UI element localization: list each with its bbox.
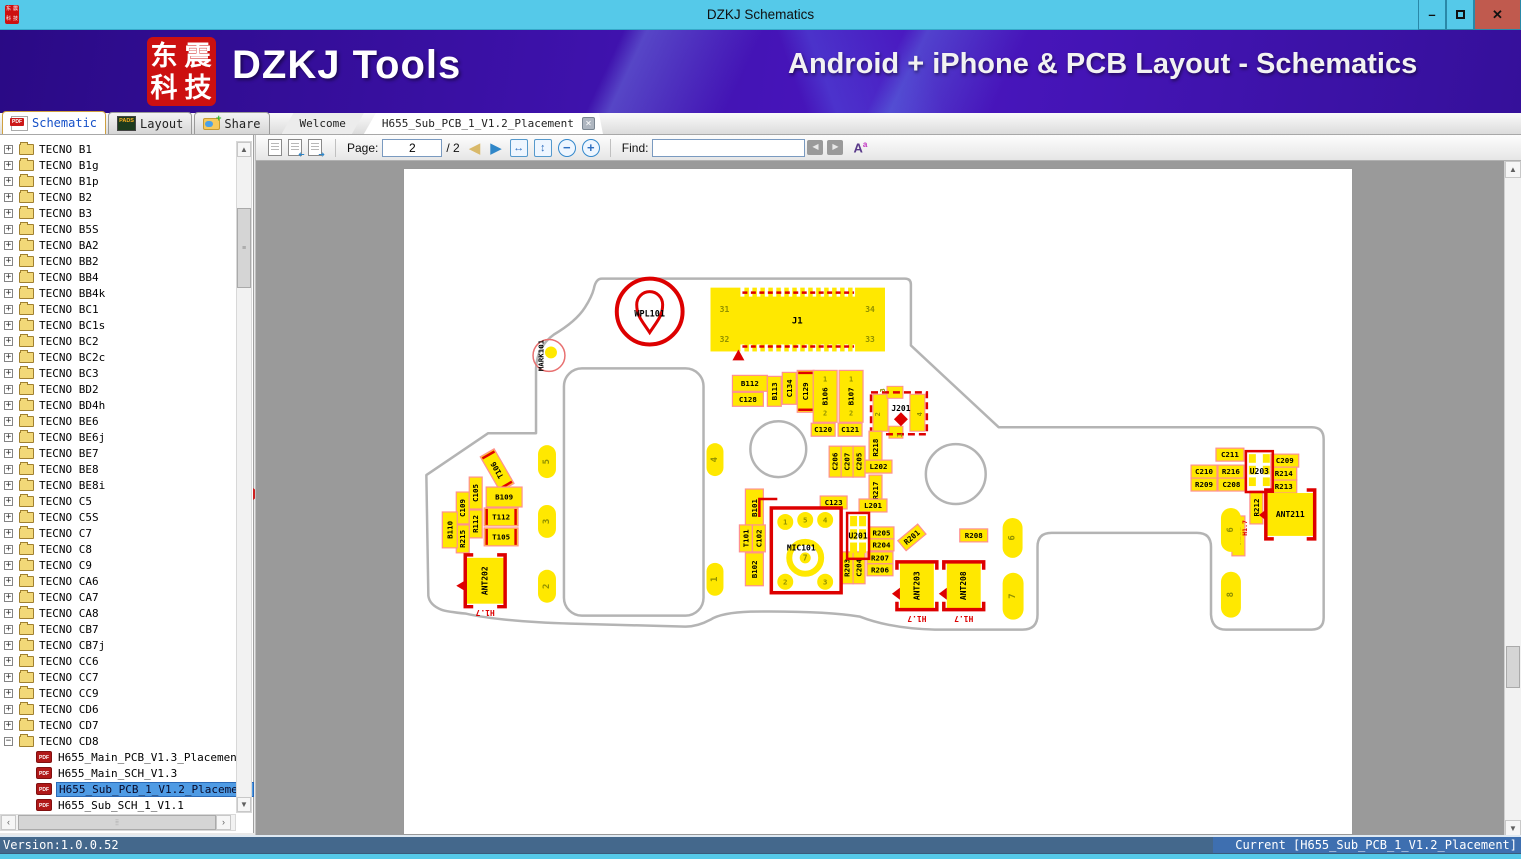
tree-folder-row[interactable]: +TECNO BC2 <box>0 333 236 349</box>
folder-icon <box>19 416 34 427</box>
tree-folder-row[interactable]: +TECNO B5S <box>0 221 236 237</box>
pcb-label: C205 <box>855 453 864 471</box>
tree-file-row[interactable]: PDFH655_Sub_SCH_1_V1.1 <box>36 797 236 813</box>
doc-tab-welcome[interactable]: Welcome <box>282 113 364 134</box>
sidebar-vertical-scrollbar[interactable]: ▲ ≡ ▼ <box>236 141 252 813</box>
fiducial-MARK101: MARK101 <box>533 339 565 371</box>
expand-icon[interactable]: + <box>4 689 13 698</box>
folder-label: TECNO CA6 <box>39 575 99 588</box>
app-name: DZKJ Tools <box>232 43 461 88</box>
folder-icon <box>19 560 34 571</box>
folder-icon <box>19 144 34 155</box>
tree-folder-row[interactable]: +TECNO BC3 <box>0 365 236 381</box>
component-R212: R212 <box>1250 491 1263 524</box>
height-annotation: H1.7 <box>907 614 926 623</box>
status-bar: Version:1.0.0.52 Current [H655_Sub_PCB_1… <box>0 835 1521 859</box>
component-C204: C204 <box>853 552 865 584</box>
pdf-file-icon: PDF <box>36 767 52 779</box>
expand-icon[interactable]: + <box>4 305 13 314</box>
file-label: H655_Main_SCH_V1.3 <box>56 767 179 780</box>
component-C102: C102 <box>752 525 765 552</box>
tree-folder-row[interactable]: +TECNO BE8i <box>0 477 236 493</box>
tab-share-label: Share <box>224 117 260 131</box>
previous-page-icon[interactable]: ◀ <box>469 139 481 157</box>
expand-icon[interactable]: + <box>4 353 13 362</box>
folder-icon <box>19 496 34 507</box>
pcb-label: B106 <box>821 387 830 405</box>
pcb-label: T112 <box>492 512 510 521</box>
tree-folder-row[interactable]: +TECNO CB7 <box>0 621 236 637</box>
tree-folder-row[interactable]: +TECNO BE6j <box>0 429 236 445</box>
tree-folder-row[interactable]: +TECNO BE8 <box>0 461 236 477</box>
pcb-label: R205 <box>872 528 890 537</box>
tree-folder-row[interactable]: +TECNO BB4 <box>0 269 236 285</box>
component-B110: B110 <box>442 512 457 548</box>
test-pad-4: 4 <box>707 443 724 476</box>
folder-icon <box>19 208 34 219</box>
close-button[interactable]: ✕ <box>1474 0 1521 30</box>
folder-label: TECNO BE6j <box>39 431 105 444</box>
tab-layout-label: Layout <box>140 117 183 131</box>
folder-icon <box>19 432 34 443</box>
folder-icon <box>19 192 34 203</box>
banner: 东震科技 DZKJ Tools Android + iPhone & PCB L… <box>0 30 1521 113</box>
pcb-label: R208 <box>965 531 983 540</box>
folder-label: TECNO BE8i <box>39 479 105 492</box>
expand-icon[interactable]: + <box>4 289 13 298</box>
tree-folder-row[interactable]: +TECNO BD2 <box>0 381 236 397</box>
find-previous-icon[interactable]: ◀ <box>807 140 823 155</box>
pcb-label: ANT202 <box>481 566 490 595</box>
tree-folder-row[interactable]: +TECNO B1 <box>0 141 236 157</box>
component-R204: R204 <box>869 539 894 551</box>
pcb-label: 5 <box>803 515 808 524</box>
tree-folder-row[interactable]: −TECNO CD8 <box>0 733 236 749</box>
expand-icon[interactable]: + <box>4 609 13 618</box>
pcb-label: 2 <box>823 409 827 417</box>
expand-icon[interactable]: + <box>4 673 13 682</box>
folder-icon <box>19 640 34 651</box>
pcb-label: 1 <box>896 433 904 437</box>
tree-file-row[interactable]: PDFH655_Sub_PCB_1_V1.2_Placement <box>36 781 236 797</box>
pcb-label: 3 <box>879 388 887 392</box>
board-cutout <box>564 368 704 615</box>
tree-folder-row[interactable]: +TECNO BC2c <box>0 349 236 365</box>
pcb-label: 32 <box>720 335 730 344</box>
pcb-label: C109 <box>458 498 467 516</box>
tab-layout[interactable]: PADS Layout <box>108 112 192 134</box>
file-label: H655_Main_PCB_V1.3_Placement <box>56 751 245 764</box>
expand-icon[interactable]: + <box>4 273 13 282</box>
component-C209: C209 <box>1271 454 1299 467</box>
folder-label: TECNO CC7 <box>39 671 99 684</box>
file-label: H655_Sub_SCH_1_V1.1 <box>56 799 186 812</box>
pcb-label: 33 <box>865 335 875 344</box>
folder-icon <box>19 704 34 715</box>
folder-icon <box>19 176 34 187</box>
folder-icon <box>19 736 34 747</box>
component-ANT202: ANT202 <box>465 555 505 607</box>
tree-folder-row[interactable]: +TECNO BC1s <box>0 317 236 333</box>
pcb-label: C120 <box>814 425 832 434</box>
component-C121: C121 <box>838 423 862 436</box>
pcb-label: 31 <box>720 305 730 314</box>
pcb-label: L202 <box>869 462 887 471</box>
fit-width-icon[interactable]: ↔ <box>510 139 528 157</box>
folder-label: TECNO BC2c <box>39 351 105 364</box>
pcb-label: C134 <box>785 379 794 397</box>
folder-label: TECNO BC1s <box>39 319 105 332</box>
tree-folder-row[interactable]: +TECNO CD7 <box>0 717 236 733</box>
maximize-icon <box>1456 10 1465 19</box>
pcb-label: R214 <box>1275 469 1293 478</box>
tree-folder-row[interactable]: +TECNO CA6 <box>0 573 236 589</box>
zoom-in-icon[interactable]: + <box>582 139 600 157</box>
expand-icon[interactable]: + <box>4 225 13 234</box>
collapse-icon[interactable]: − <box>4 737 13 746</box>
pcb-label: R218 <box>871 438 880 456</box>
component-T105: T105 <box>484 528 518 546</box>
pcb-label: 1 <box>783 517 788 526</box>
component-C129: C129 <box>797 370 814 412</box>
find-next-icon[interactable]: ▶ <box>827 140 843 155</box>
window-title: DZKJ Schematics <box>0 7 1521 22</box>
tree-folder-row[interactable]: +TECNO CD6 <box>0 701 236 717</box>
pcb-label: 2 <box>783 577 788 586</box>
test-pad-3: 3 <box>538 505 556 538</box>
expand-icon[interactable]: + <box>4 401 13 410</box>
tree-folder-row[interactable]: +TECNO CC7 <box>0 669 236 685</box>
page-total: / 2 <box>446 141 459 155</box>
tree-folder-row[interactable]: +TECNO C7 <box>0 525 236 541</box>
folder-label: TECNO C8 <box>39 543 92 556</box>
previous-view-icon[interactable] <box>288 139 302 156</box>
folder-icon <box>19 592 34 603</box>
expand-icon[interactable]: + <box>4 449 13 458</box>
board-hole <box>750 421 806 477</box>
pcb-label: 7 <box>803 553 808 562</box>
pcb-label: ANT208 <box>959 571 968 600</box>
pdf-file-icon: PDF <box>36 799 52 811</box>
expand-icon[interactable]: + <box>4 625 13 634</box>
red-triangle-icon <box>939 588 947 600</box>
expand-icon[interactable]: + <box>4 257 13 266</box>
folder-icon <box>19 448 34 459</box>
tree-folder-row[interactable]: +TECNO C5 <box>0 493 236 509</box>
next-view-icon[interactable] <box>308 139 322 156</box>
pcb-label: R209 <box>1195 480 1213 489</box>
expand-icon[interactable]: + <box>4 145 13 154</box>
pcb-label: C129 <box>801 382 810 400</box>
folder-label: TECNO BD4h <box>39 399 105 412</box>
expand-icon[interactable]: + <box>4 577 13 586</box>
folder-label: TECNO BE7 <box>39 447 99 460</box>
folder-label: TECNO B1 <box>39 143 92 156</box>
connector-J201: J2013241 <box>871 386 927 438</box>
pcb-label: 1 <box>710 577 720 582</box>
tree-folder-row[interactable]: +TECNO BD4h <box>0 397 236 413</box>
pdf-viewer[interactable]: MARK101WPL101J131343233J2013241B112C128B… <box>255 161 1521 837</box>
viewer-vscroll-thumb[interactable] <box>1506 646 1520 688</box>
component-R201: R201 <box>898 524 926 551</box>
scroll-right-icon[interactable]: › <box>216 815 231 830</box>
expand-icon[interactable]: + <box>4 705 13 714</box>
pcb-label: 4 <box>823 515 828 524</box>
fit-page-icon[interactable]: ↕ <box>534 139 552 157</box>
test-pad-6: 6 <box>1221 508 1241 552</box>
component-C207: C207 <box>841 446 853 477</box>
tree-file-row[interactable]: PDFH655_Main_PCB_V1.3_Placement <box>36 749 236 765</box>
minimize-button[interactable]: – <box>1418 0 1446 30</box>
pdf-file-icon: PDF <box>36 751 52 763</box>
match-case-icon[interactable]: Aa <box>853 140 867 155</box>
pcb-label: T101 <box>741 529 750 547</box>
folder-icon <box>19 512 34 523</box>
tree-folder-row[interactable]: +TECNO BE7 <box>0 445 236 461</box>
expand-icon[interactable]: + <box>4 321 13 330</box>
pcb-label: R212 <box>1252 498 1261 516</box>
test-pad-5: 5 <box>538 445 556 478</box>
maximize-button[interactable] <box>1446 0 1474 30</box>
component-ANT208: ANT208 <box>944 562 984 610</box>
zoom-out-icon[interactable]: − <box>558 139 576 157</box>
folder-label: TECNO BB4k <box>39 287 105 300</box>
find-input[interactable] <box>652 139 805 157</box>
pcb-label: 7 <box>1008 594 1018 599</box>
expand-icon[interactable]: + <box>4 657 13 666</box>
sidebar-vscroll-thumb[interactable]: ≡ <box>237 208 251 288</box>
tree-folder-row[interactable]: +TECNO BB4k <box>0 285 236 301</box>
tab-schematic[interactable]: PDF Schematic <box>2 111 106 134</box>
tab-share[interactable]: + Share <box>194 112 269 134</box>
component-MIC101: 154237MIC101 <box>759 499 841 593</box>
tree-folder-row[interactable]: +TECNO BC1 <box>0 301 236 317</box>
expand-icon[interactable]: + <box>4 561 13 570</box>
tree-folder-row[interactable]: +TECNO BB2 <box>0 253 236 269</box>
folder-icon <box>19 624 34 635</box>
red-triangle-icon <box>892 588 900 600</box>
pcb-label: R204 <box>872 540 890 549</box>
folder-label: TECNO BE6 <box>39 415 99 428</box>
folder-label: TECNO CA7 <box>39 591 99 604</box>
pcb-label: R216 <box>1222 467 1240 476</box>
expand-icon[interactable]: + <box>4 385 13 394</box>
folder-icon <box>19 688 34 699</box>
expand-icon[interactable]: + <box>4 721 13 730</box>
pcb-label: 2 <box>849 409 853 417</box>
viewer-scroll-up-icon[interactable]: ▲ <box>1505 161 1521 178</box>
expand-icon[interactable]: + <box>4 481 13 490</box>
test-pad-7: 7 <box>1003 573 1024 620</box>
component-C128: C128 <box>732 392 763 406</box>
expand-icon[interactable]: + <box>4 417 13 426</box>
folder-label: TECNO BA2 <box>39 239 99 252</box>
tree-folder-row[interactable]: +TECNO B1g <box>0 157 236 173</box>
folder-icon <box>19 480 34 491</box>
pcb-label: 3 <box>542 519 552 524</box>
close-tab-icon[interactable]: ✕ <box>582 117 595 130</box>
folder-icon <box>19 336 34 347</box>
share-folder-icon: + <box>203 118 220 130</box>
marker-WPL101: WPL101 <box>617 279 683 345</box>
expand-icon[interactable]: + <box>4 513 13 522</box>
pcb-label: J201 <box>891 404 910 413</box>
pcb-label: 4 <box>916 412 924 416</box>
folder-icon <box>19 368 34 379</box>
height-annotation: H1.7 <box>954 614 973 623</box>
component-R112: R112 <box>469 510 482 538</box>
pcb-label: C208 <box>1222 480 1240 489</box>
folder-label: TECNO C5S <box>39 511 99 524</box>
tab-bar: PDF Schematic PADS Layout + Share Welcom… <box>0 113 1521 135</box>
component-B102: B102 <box>745 553 763 586</box>
tree-folder-row[interactable]: +TECNO C5S <box>0 509 236 525</box>
pcb-label: R112 <box>471 515 480 533</box>
tree-folder-row[interactable]: +TECNO B1p <box>0 173 236 189</box>
pcb-label: C209 <box>1276 456 1294 465</box>
expand-icon[interactable]: + <box>4 193 13 202</box>
titlebar: 东震科技 DZKJ Schematics – ✕ <box>0 0 1521 30</box>
component-C134: C134 <box>782 372 796 404</box>
folder-label: TECNO C5 <box>39 495 92 508</box>
component-R206: R206 <box>867 564 893 576</box>
pcb-label: R217 <box>871 482 880 500</box>
component-C208: C208 <box>1218 478 1245 491</box>
folder-label: TECNO BE8 <box>39 463 99 476</box>
folder-icon <box>19 320 34 331</box>
pdf-page: MARK101WPL101J131343233J2013241B112C128B… <box>403 168 1353 835</box>
pcb-label: 1 <box>823 375 827 383</box>
window-controls: – ✕ <box>1418 0 1521 30</box>
folder-icon <box>19 384 34 395</box>
component-B113: B113 <box>767 376 781 406</box>
expand-icon[interactable]: + <box>4 465 13 474</box>
folder-label: TECNO B1p <box>39 175 99 188</box>
pcb-label: 5 <box>542 459 552 464</box>
component-T106: T106 <box>480 449 514 492</box>
dzkj-logo: 东震科技 <box>147 37 216 106</box>
folder-icon <box>19 304 34 315</box>
expand-icon[interactable]: + <box>4 337 13 346</box>
scroll-up-icon[interactable]: ▲ <box>237 142 251 157</box>
sidebar-horizontal-scrollbar[interactable]: ‹ ⦙⦙ › <box>0 814 236 831</box>
next-page-icon[interactable]: ▶ <box>490 139 502 157</box>
expand-icon[interactable]: + <box>4 641 13 650</box>
component-L202: L202 <box>865 460 892 473</box>
pcb-label: U201 <box>848 531 867 540</box>
tree-file-row[interactable]: PDFH655_Main_SCH_V1.3 <box>36 765 236 781</box>
component-B107: 12B107 <box>839 370 863 422</box>
folder-label: TECNO B3 <box>39 207 92 220</box>
pcb-placement-drawing: MARK101WPL101J131343233J2013241B112C128B… <box>404 169 1352 834</box>
tree-folder-row[interactable]: +TECNO BE6 <box>0 413 236 429</box>
pcb-label: C105 <box>471 484 480 502</box>
tree-folder-row[interactable]: +TECNO CA7 <box>0 589 236 605</box>
pcb-label: ANT211 <box>1276 510 1305 519</box>
doc-tab-placement[interactable]: H655_Sub_PCB_1_V1.2_Placement ✕ <box>364 113 603 134</box>
expand-icon[interactable]: + <box>4 529 13 538</box>
tree-folder-row[interactable]: +TECNO B3 <box>0 205 236 221</box>
scroll-left-icon[interactable]: ‹ <box>1 815 16 830</box>
folder-icon <box>19 224 34 235</box>
pcb-label: T105 <box>492 532 510 541</box>
pcb-label: MARK101 <box>537 339 546 371</box>
test-pad-8: 8 <box>1221 572 1241 618</box>
pcb-label: R215 <box>458 530 467 548</box>
expand-icon[interactable]: + <box>4 161 13 170</box>
expand-icon[interactable]: + <box>4 593 13 602</box>
folder-icon <box>19 672 34 683</box>
expand-icon[interactable]: + <box>4 497 13 506</box>
pcb-label: 4 <box>710 457 720 462</box>
folder-icon <box>19 256 34 267</box>
pcb-label: 2 <box>874 412 882 416</box>
folder-icon <box>19 656 34 667</box>
component-R208: R208 <box>960 529 988 542</box>
tree-folder-row[interactable]: +TECNO B2 <box>0 189 236 205</box>
pcb-label: C207 <box>843 453 852 471</box>
dzkj-schematics-window: 东震科技 DZKJ Schematics – ✕ 东震科技 DZKJ Tools… <box>0 0 1521 859</box>
single-page-icon[interactable] <box>268 139 282 156</box>
viewer-vertical-scrollbar[interactable]: ▲ ▼ <box>1504 161 1521 837</box>
red-triangle-icon <box>456 580 466 592</box>
height-annotation: H1.7 <box>475 608 494 617</box>
expand-icon[interactable]: + <box>4 241 13 250</box>
pcb-label: MIC101 <box>787 543 816 552</box>
component-R205: R205 <box>869 527 894 539</box>
component-T101: T101 <box>739 525 752 552</box>
pcb-label: L201 <box>864 501 882 510</box>
expand-icon[interactable]: + <box>4 209 13 218</box>
pcb-label: C102 <box>754 529 763 547</box>
folder-label: TECNO BC2 <box>39 335 99 348</box>
pcb-label: C211 <box>1221 450 1239 459</box>
tree-folder-row[interactable]: +TECNO CA8 <box>0 605 236 621</box>
pcb-label: R206 <box>871 565 889 574</box>
tree-folder-row[interactable]: +TECNO BA2 <box>0 237 236 253</box>
sidebar-hscroll-thumb[interactable]: ⦙⦙ <box>18 815 216 830</box>
folder-label: TECNO BC3 <box>39 367 99 380</box>
folder-label: TECNO CC9 <box>39 687 99 700</box>
folder-label: TECNO CB7j <box>39 639 105 652</box>
tree-folder-row[interactable]: +TECNO C9 <box>0 557 236 573</box>
pcb-label: C210 <box>1195 467 1213 476</box>
expand-icon[interactable]: + <box>4 433 13 442</box>
component-ANT211: ANT211 <box>1266 490 1315 539</box>
folder-label: TECNO BB2 <box>39 255 99 268</box>
tree-folder-row[interactable]: +TECNO CC9 <box>0 685 236 701</box>
tree-folder-row[interactable]: +TECNO CB7j <box>0 637 236 653</box>
pcb-label: WPL101 <box>634 309 665 319</box>
folder-icon <box>19 272 34 283</box>
folder-icon <box>19 544 34 555</box>
tree-folder-row[interactable]: +TECNO C8 <box>0 541 236 557</box>
scroll-down-icon[interactable]: ▼ <box>237 797 251 812</box>
page-input[interactable] <box>382 139 442 157</box>
expand-icon[interactable]: + <box>4 369 13 378</box>
component-B112: B112 <box>732 375 767 391</box>
pin1-diamond-icon <box>894 412 908 426</box>
test-pad-2: 2 <box>538 570 556 603</box>
expand-icon[interactable]: + <box>4 545 13 554</box>
pcb-label: 6 <box>1226 527 1236 532</box>
pcb-label: 3 <box>823 577 828 586</box>
folder-icon <box>19 288 34 299</box>
component-B109: B109 <box>486 487 522 507</box>
schematic-tree: +TECNO B1+TECNO B1g+TECNO B1p+TECNO B2+T… <box>0 141 236 813</box>
tree-folder-row[interactable]: +TECNO CC6 <box>0 653 236 669</box>
expand-icon[interactable]: + <box>4 177 13 186</box>
